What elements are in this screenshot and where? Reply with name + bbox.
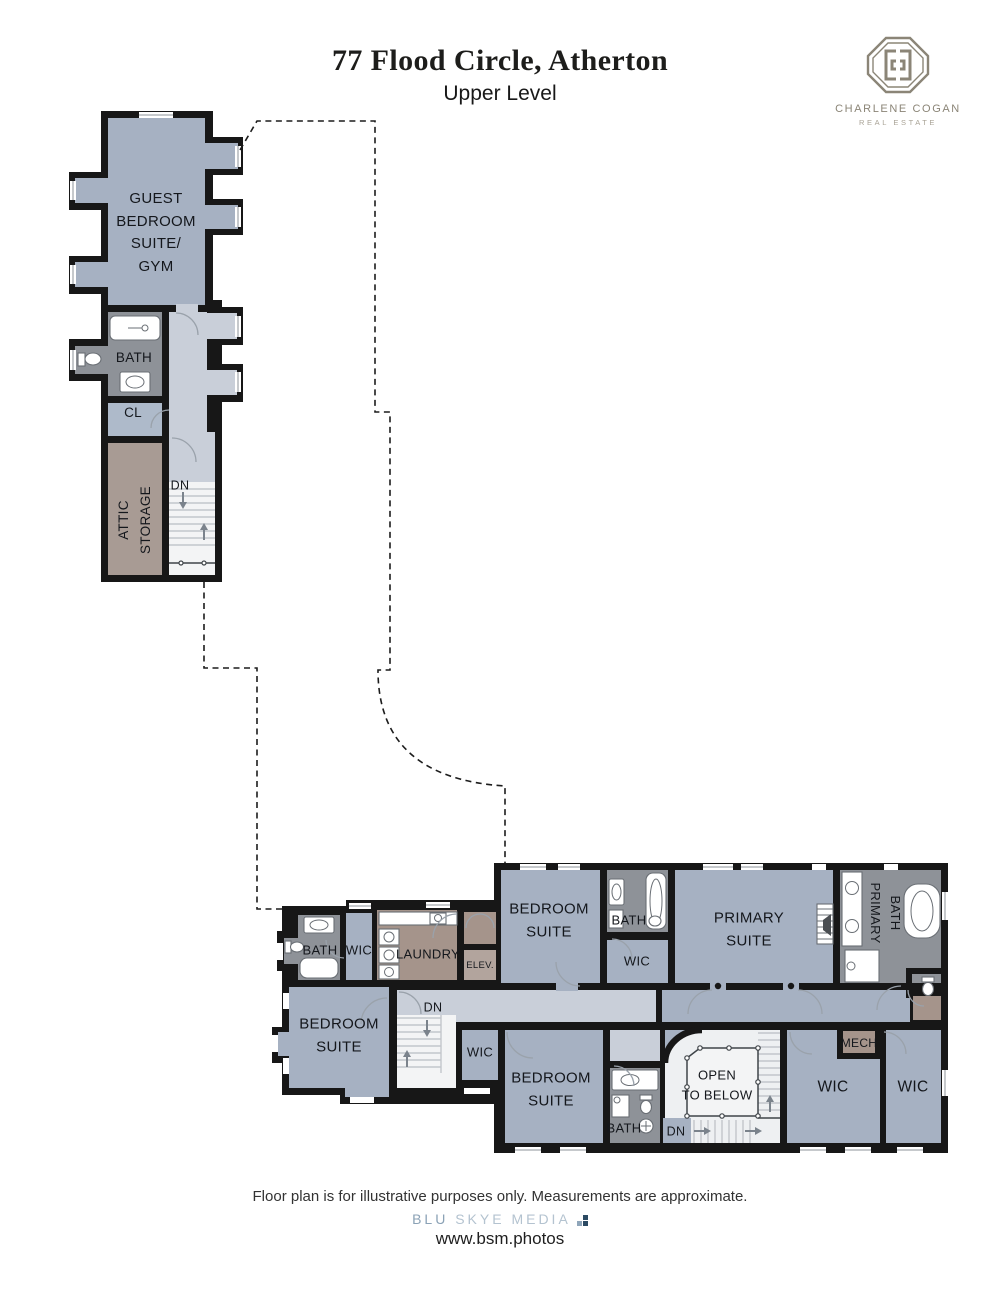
disclaimer-text: Floor plan is for illustrative purposes … xyxy=(0,1188,1000,1205)
label-bath-left: BATH xyxy=(303,940,338,960)
label-upper-bath: BATH xyxy=(116,348,152,368)
credit-brand-secondary: SKYE MEDIA xyxy=(455,1211,570,1227)
label-wic-bottom-right: WIC xyxy=(897,1075,928,1098)
label-laundry: LAUNDRY xyxy=(396,944,460,964)
lower-wing-plan xyxy=(272,863,948,1153)
credit-brand-primary: BLU xyxy=(412,1211,448,1227)
label-primary-bath-line1: PRIMARY xyxy=(865,882,885,943)
label-wic-top: WIC xyxy=(624,951,650,971)
label-primary-bath-line2: BATH xyxy=(885,896,905,931)
credit-line: BLU SKYE MEDIA xyxy=(0,1211,1000,1227)
label-open-to-below: OPEN TO BELOW xyxy=(682,1066,753,1105)
blu-skye-pixel-icon xyxy=(577,1215,588,1226)
label-bath-bottom: BATH xyxy=(607,1118,642,1138)
label-bedroom-suite-left: BEDROOM SUITE xyxy=(299,1014,379,1059)
label-bottom-stairs-dn: DN xyxy=(667,1123,686,1142)
floor-plan-page: 77 Flood Circle, Atherton Upper Level CH… xyxy=(0,0,1000,1294)
label-elevator: ELEV. xyxy=(466,959,494,973)
label-left-stairs-dn: DN xyxy=(424,999,443,1018)
label-primary-suite: PRIMARY SUITE xyxy=(714,908,784,953)
label-wic-small: WIC xyxy=(467,1042,493,1062)
label-bedroom-suite-bottom: BEDROOM SUITE xyxy=(511,1068,591,1113)
label-upper-stairs-dn: DN xyxy=(171,477,190,496)
label-attic-storage-line1: ATTIC xyxy=(114,500,134,540)
label-guest-bedroom-suite-gym: GUEST BEDROOM SUITE/ GYM xyxy=(116,188,196,278)
connector-dashed-lines xyxy=(204,121,505,909)
label-wic-bottom-left: WIC xyxy=(817,1075,848,1098)
label-attic-storage-line2: STORAGE xyxy=(136,486,156,554)
label-wic-left: WIC xyxy=(346,940,372,960)
label-bath-top: BATH xyxy=(612,910,647,930)
credit-url: www.bsm.photos xyxy=(0,1229,1000,1249)
label-mech: MECH xyxy=(841,1034,878,1052)
label-bedroom-suite-top: BEDROOM SUITE xyxy=(509,899,589,944)
label-upper-closet: CL xyxy=(124,403,142,423)
